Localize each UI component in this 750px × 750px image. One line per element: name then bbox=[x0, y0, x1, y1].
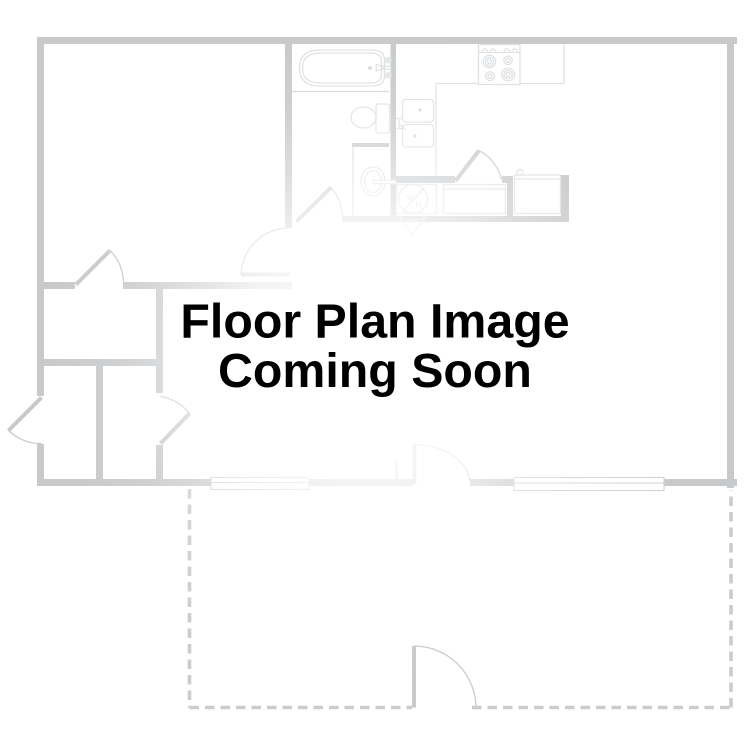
svg-text:Coming Soon: Coming Soon bbox=[218, 344, 532, 398]
svg-text:Floor Plan Image: Floor Plan Image bbox=[180, 295, 569, 349]
